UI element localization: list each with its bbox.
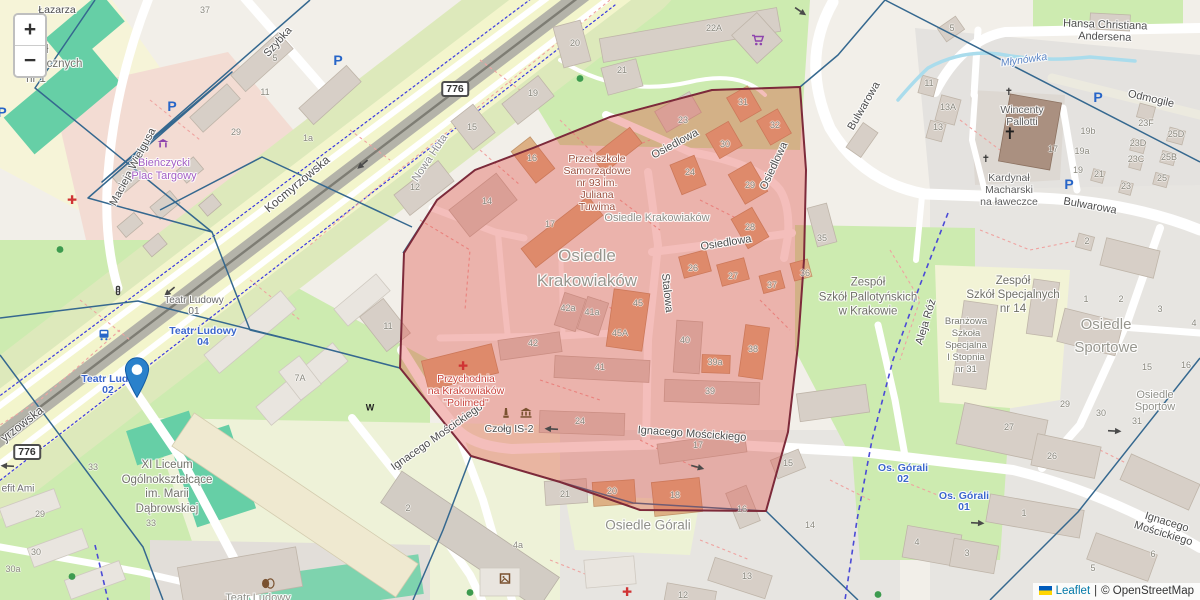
building [480, 568, 520, 596]
zoom-out-button[interactable]: − [15, 46, 45, 76]
marker-dot [132, 364, 143, 375]
osm-attribution-link[interactable]: © OpenStreetMap [1101, 585, 1194, 597]
map-canvas[interactable]: ŁazarzaSzybkaMacieja WielgusaKocmyrzowsk… [0, 0, 1200, 600]
building [998, 94, 1061, 170]
building [1129, 156, 1144, 171]
leaflet-link[interactable]: Leaflet [1056, 585, 1091, 597]
map-graphics [0, 0, 1200, 600]
map-marker[interactable] [125, 357, 150, 398]
road [974, 30, 978, 95]
attribution-separator: | [1094, 585, 1097, 597]
building [1090, 13, 1131, 31]
marker-pin-icon [125, 358, 148, 397]
zoom-in-button[interactable]: + [15, 15, 45, 46]
building [584, 556, 636, 588]
attribution-bar: Leaflet|© OpenStreetMap [1033, 583, 1200, 600]
ukraine-flag-icon [1039, 586, 1052, 595]
building [1119, 181, 1134, 196]
building [1091, 169, 1106, 184]
zoom-control: + − [13, 13, 47, 78]
